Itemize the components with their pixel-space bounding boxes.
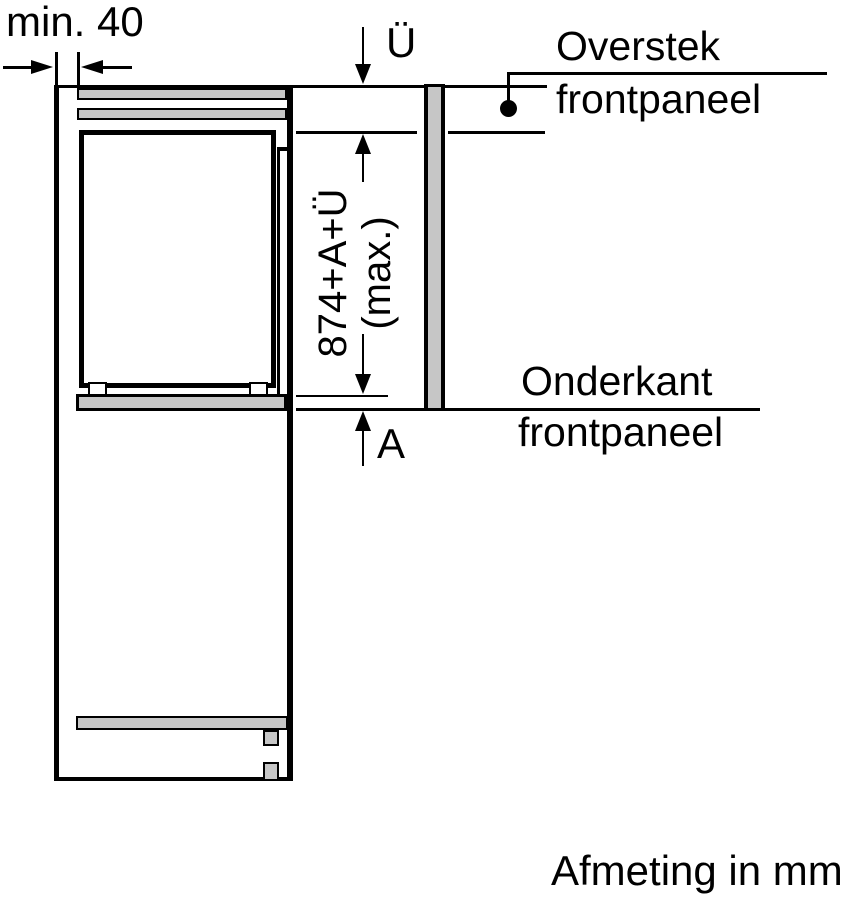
min-clearance-arrow-line-right <box>102 66 132 69</box>
min-clearance-arrow-line-left <box>3 66 33 69</box>
panel-length-arrowhead-bottom <box>355 374 371 394</box>
u-overhang-label: Ü <box>386 22 416 64</box>
niche-bottom-rail <box>76 394 287 411</box>
hinge-block-upper <box>263 730 279 746</box>
installation-diagram: min. 40 Ü 874+A+Ü (max.) A Overs <box>0 0 865 900</box>
overstek-callout-line <box>507 72 827 75</box>
appliance-door <box>79 130 276 388</box>
door-side-strip <box>277 147 287 396</box>
overstek-callout-dot <box>500 100 517 117</box>
min-clearance-label: min. 40 <box>6 1 144 43</box>
min-clearance-extension-line-right <box>77 52 80 89</box>
gap-a-arrow-line <box>362 430 365 466</box>
overstek-label-line2: frontpaneel <box>556 79 761 120</box>
panel-length-label-line1: 874+A+Ü <box>311 173 355 373</box>
u-overhang-arrowhead <box>355 64 371 84</box>
units-note-label: Afmeting in mm <box>551 850 843 892</box>
cabinet-bottom-line <box>54 777 292 781</box>
lower-shelf <box>76 716 288 730</box>
cabinet-left-wall <box>54 85 59 781</box>
panel-length-arrowhead-top <box>355 134 371 154</box>
gap-a-arrowhead <box>355 411 371 431</box>
gap-a-label: A <box>377 423 405 465</box>
min-clearance-extension-line-left <box>55 52 58 86</box>
hinge-block-lower <box>263 762 279 781</box>
panel-length-bottom-tick-line <box>296 395 388 398</box>
u-overhang-arrow-line <box>362 27 365 65</box>
u-dim-line-right <box>448 131 545 134</box>
mounting-rail-top-1 <box>77 88 287 100</box>
onderkant-label-line2: frontpaneel <box>518 412 723 453</box>
cabinet-right-wall <box>287 85 293 781</box>
overstek-label-line1: Overstek <box>556 26 720 67</box>
panel-length-label: 874+A+Ü (max.) <box>311 173 401 373</box>
panel-length-arrow-line-bottom <box>362 334 365 375</box>
overstek-callout-leader <box>507 72 510 101</box>
min-clearance-arrowhead-left <box>31 60 53 74</box>
onderkant-label-line1: Onderkant <box>521 361 712 402</box>
mounting-rail-top-2 <box>77 108 287 121</box>
front-panel-bar <box>424 84 445 411</box>
min-clearance-arrowhead-right <box>81 60 103 74</box>
